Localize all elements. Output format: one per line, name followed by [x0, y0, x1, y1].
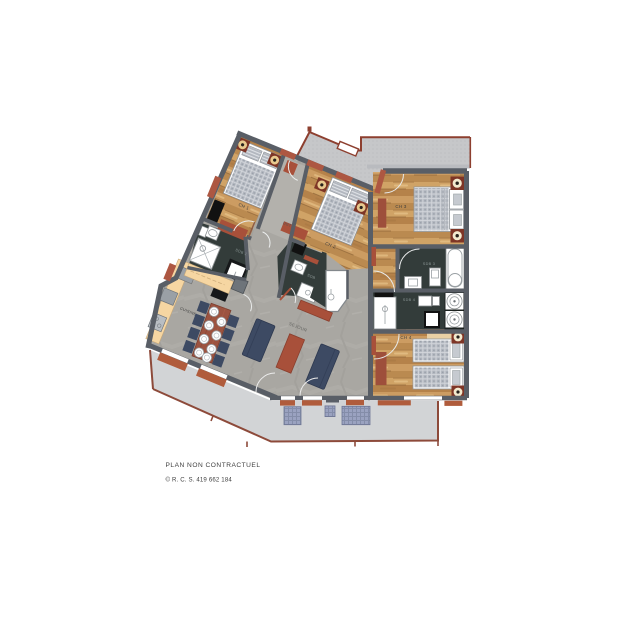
svg-text:CH 4: CH 4 [400, 335, 411, 340]
svg-text:PLAN NON CONTRACTUEL: PLAN NON CONTRACTUEL [166, 462, 261, 469]
svg-text:SDB 3: SDB 3 [423, 262, 435, 266]
svg-text:© R. C. S. 419 662 184: © R. C. S. 419 662 184 [166, 477, 233, 484]
svg-text:SDB 4: SDB 4 [403, 298, 415, 302]
svg-text:CH 3: CH 3 [395, 204, 406, 209]
